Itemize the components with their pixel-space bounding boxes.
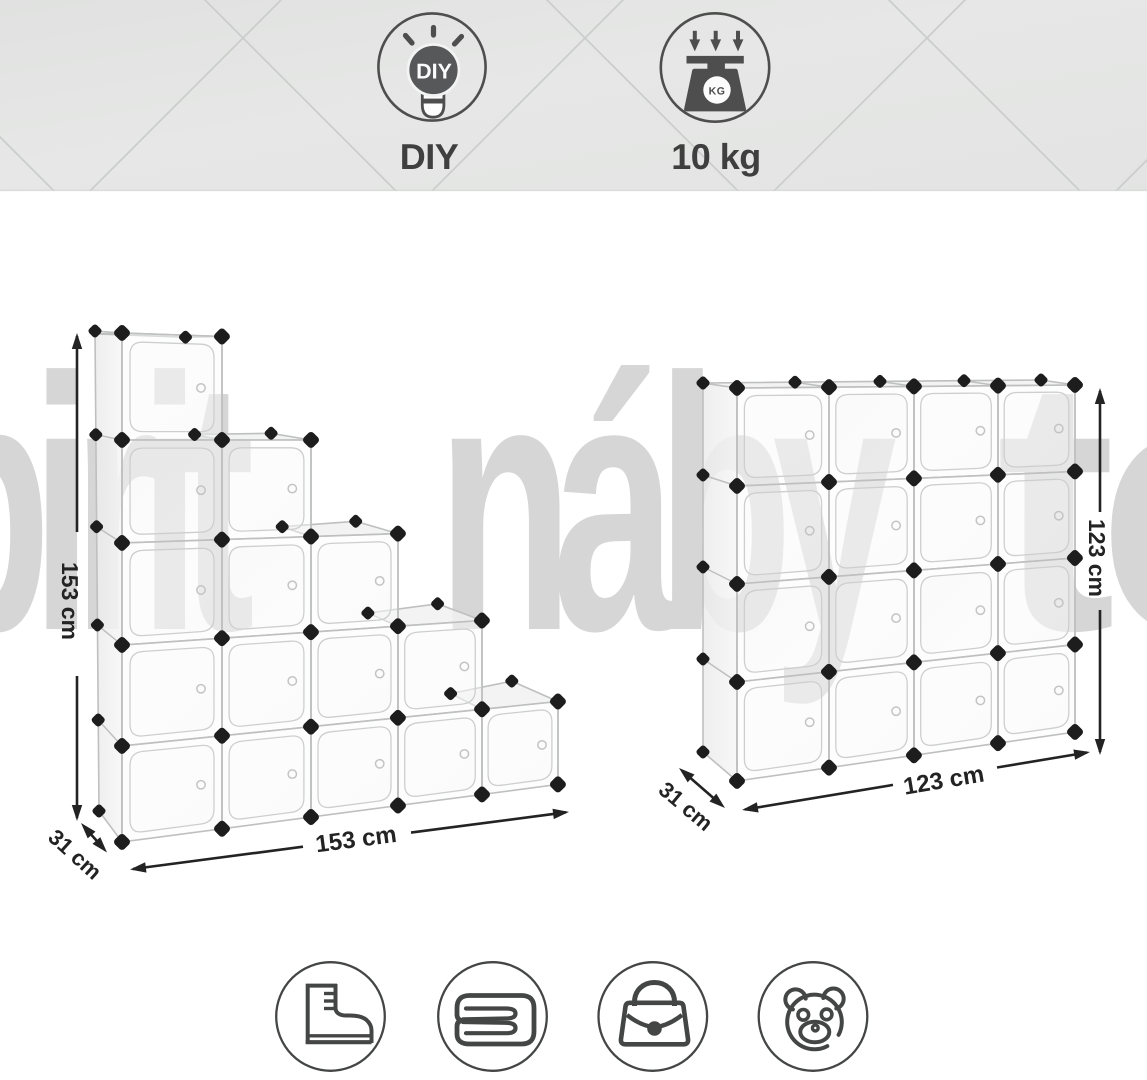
- svg-text:153 cm: 153 cm: [57, 562, 83, 640]
- svg-text:10 kg: 10 kg: [671, 136, 761, 177]
- svg-text:123 cm: 123 cm: [901, 761, 986, 801]
- svg-text:153 cm: 153 cm: [314, 821, 398, 858]
- svg-text:31 cm: 31 cm: [654, 777, 718, 836]
- svg-text:KG: KG: [709, 86, 726, 98]
- svg-text:31 cm: 31 cm: [43, 824, 106, 884]
- svg-text:DIY: DIY: [400, 136, 459, 177]
- svg-text:DIY: DIY: [416, 59, 452, 83]
- svg-text:123 cm: 123 cm: [1084, 519, 1110, 597]
